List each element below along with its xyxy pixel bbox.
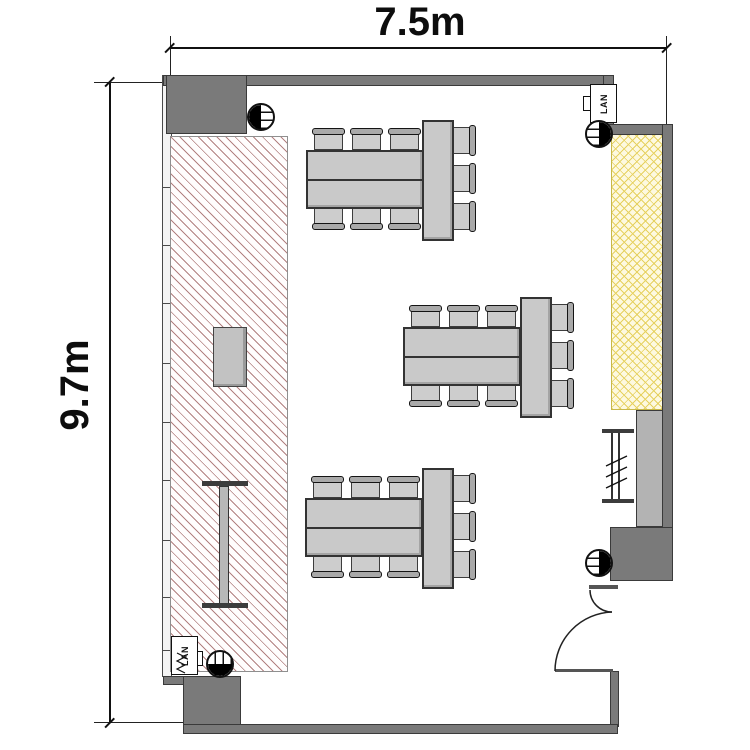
chair-back bbox=[567, 378, 574, 409]
chair-back bbox=[567, 340, 574, 371]
chair-seat bbox=[487, 310, 516, 327]
chair bbox=[388, 128, 421, 150]
chair-back bbox=[312, 223, 345, 230]
door-swing-arc bbox=[555, 612, 612, 671]
floor-plan: 7.5m 9.7m LAN LAN bbox=[0, 0, 750, 750]
chair-back bbox=[485, 305, 518, 312]
lan-port-top: LAN bbox=[590, 84, 617, 123]
end-table bbox=[422, 468, 454, 589]
chair bbox=[350, 208, 383, 230]
column-top-left bbox=[166, 75, 247, 134]
meeting-table bbox=[403, 327, 521, 386]
chair-seat bbox=[551, 342, 568, 369]
chair-back bbox=[469, 125, 476, 156]
chair bbox=[551, 378, 574, 409]
chair bbox=[485, 385, 518, 407]
side-table bbox=[213, 327, 247, 387]
chair-back bbox=[311, 476, 344, 483]
chair-seat bbox=[389, 481, 418, 498]
height-dimension-line bbox=[109, 82, 111, 723]
partition-bottom-bar bbox=[602, 499, 634, 503]
chair-back bbox=[409, 400, 442, 407]
lan-label-bottom: LAN bbox=[180, 646, 190, 666]
chair-seat bbox=[453, 127, 470, 154]
width-dimension-line bbox=[170, 47, 667, 49]
chair bbox=[387, 476, 420, 498]
outlet-fill-right bbox=[599, 551, 611, 575]
chair-back bbox=[447, 305, 480, 312]
height-dimension-label: 9.7m bbox=[45, 330, 105, 440]
chair bbox=[349, 556, 382, 578]
chair bbox=[409, 385, 442, 407]
outlet-top-right-icon bbox=[585, 120, 613, 148]
chair-back bbox=[387, 476, 420, 483]
chair-back bbox=[349, 571, 382, 578]
chair-back bbox=[409, 305, 442, 312]
chair-back bbox=[469, 163, 476, 194]
chair-seat bbox=[313, 481, 342, 498]
chair-back bbox=[469, 549, 476, 580]
dimension-extension-line bbox=[666, 36, 667, 134]
chair-seat bbox=[449, 310, 478, 327]
outlet-bottom-left-icon bbox=[206, 650, 234, 678]
stand-stem bbox=[219, 486, 229, 604]
meeting-table bbox=[305, 498, 423, 557]
chair-back bbox=[388, 128, 421, 135]
chair bbox=[551, 302, 574, 333]
chair-back bbox=[387, 571, 420, 578]
chair-seat bbox=[411, 310, 440, 327]
column-bottom-right bbox=[610, 527, 673, 581]
chair bbox=[311, 556, 344, 578]
right-wall bbox=[662, 124, 673, 581]
chair-back bbox=[312, 128, 345, 135]
chair-back bbox=[350, 223, 383, 230]
chair bbox=[453, 473, 476, 504]
table-divider bbox=[404, 356, 520, 358]
chair-seat bbox=[352, 133, 381, 150]
chair-back bbox=[311, 571, 344, 578]
chair bbox=[312, 208, 345, 230]
chair bbox=[453, 549, 476, 580]
column-bottom-left bbox=[183, 676, 241, 726]
chair-back bbox=[567, 302, 574, 333]
chair-back bbox=[469, 201, 476, 232]
outlet-fill-left bbox=[249, 105, 261, 129]
table-divider bbox=[306, 527, 422, 529]
chair bbox=[453, 125, 476, 156]
lan-port-bottom: LAN bbox=[171, 636, 198, 675]
chair bbox=[311, 476, 344, 498]
chair bbox=[312, 128, 345, 150]
dimension-extension-line bbox=[94, 82, 164, 83]
screen-hatched-area bbox=[611, 134, 664, 410]
outlet-fill-bottom bbox=[208, 664, 232, 676]
door-jamb-top bbox=[589, 585, 618, 589]
bottom-left-step bbox=[163, 676, 185, 685]
chair-back bbox=[350, 128, 383, 135]
outlet-bottom-right-icon bbox=[585, 549, 613, 577]
chair-back bbox=[485, 400, 518, 407]
counter-hatched-area bbox=[170, 136, 288, 672]
chair bbox=[350, 128, 383, 150]
door-leaf-arc bbox=[590, 590, 612, 612]
chair-seat bbox=[453, 551, 470, 578]
dimension-extension-line bbox=[170, 36, 171, 76]
chair-back bbox=[469, 511, 476, 542]
bottom-wall bbox=[183, 724, 618, 734]
chair bbox=[447, 385, 480, 407]
chair bbox=[388, 208, 421, 230]
outlet-top-left-icon bbox=[247, 103, 275, 131]
chair-seat bbox=[390, 133, 419, 150]
width-dimension-label: 7.5m bbox=[300, 2, 540, 42]
chair-seat bbox=[453, 475, 470, 502]
chair-back bbox=[388, 223, 421, 230]
chair-back bbox=[349, 476, 382, 483]
chair-seat bbox=[551, 304, 568, 331]
chair bbox=[453, 511, 476, 542]
table-divider bbox=[307, 179, 423, 181]
door-threshold bbox=[555, 669, 613, 672]
chair-seat bbox=[551, 380, 568, 407]
chair bbox=[453, 201, 476, 232]
chair bbox=[387, 556, 420, 578]
chair-seat bbox=[453, 513, 470, 540]
chair bbox=[349, 476, 382, 498]
meeting-table bbox=[306, 150, 424, 209]
outlet-fill-right bbox=[599, 122, 611, 146]
chair bbox=[551, 340, 574, 371]
end-table bbox=[422, 120, 454, 241]
chair-seat bbox=[453, 203, 470, 230]
bottom-right-wall bbox=[610, 671, 619, 727]
lan-label-top: LAN bbox=[599, 94, 609, 114]
chair bbox=[485, 305, 518, 327]
chair-back bbox=[447, 400, 480, 407]
chair bbox=[453, 163, 476, 194]
chair bbox=[409, 305, 442, 327]
stand-bottom-bar bbox=[202, 603, 248, 608]
chair-seat bbox=[314, 133, 343, 150]
chair-back bbox=[469, 473, 476, 504]
chair-seat bbox=[351, 481, 380, 498]
chair-seat bbox=[453, 165, 470, 192]
partition-rails bbox=[611, 433, 620, 499]
end-table bbox=[520, 297, 552, 418]
chair bbox=[447, 305, 480, 327]
wall-cabinet bbox=[636, 410, 663, 527]
